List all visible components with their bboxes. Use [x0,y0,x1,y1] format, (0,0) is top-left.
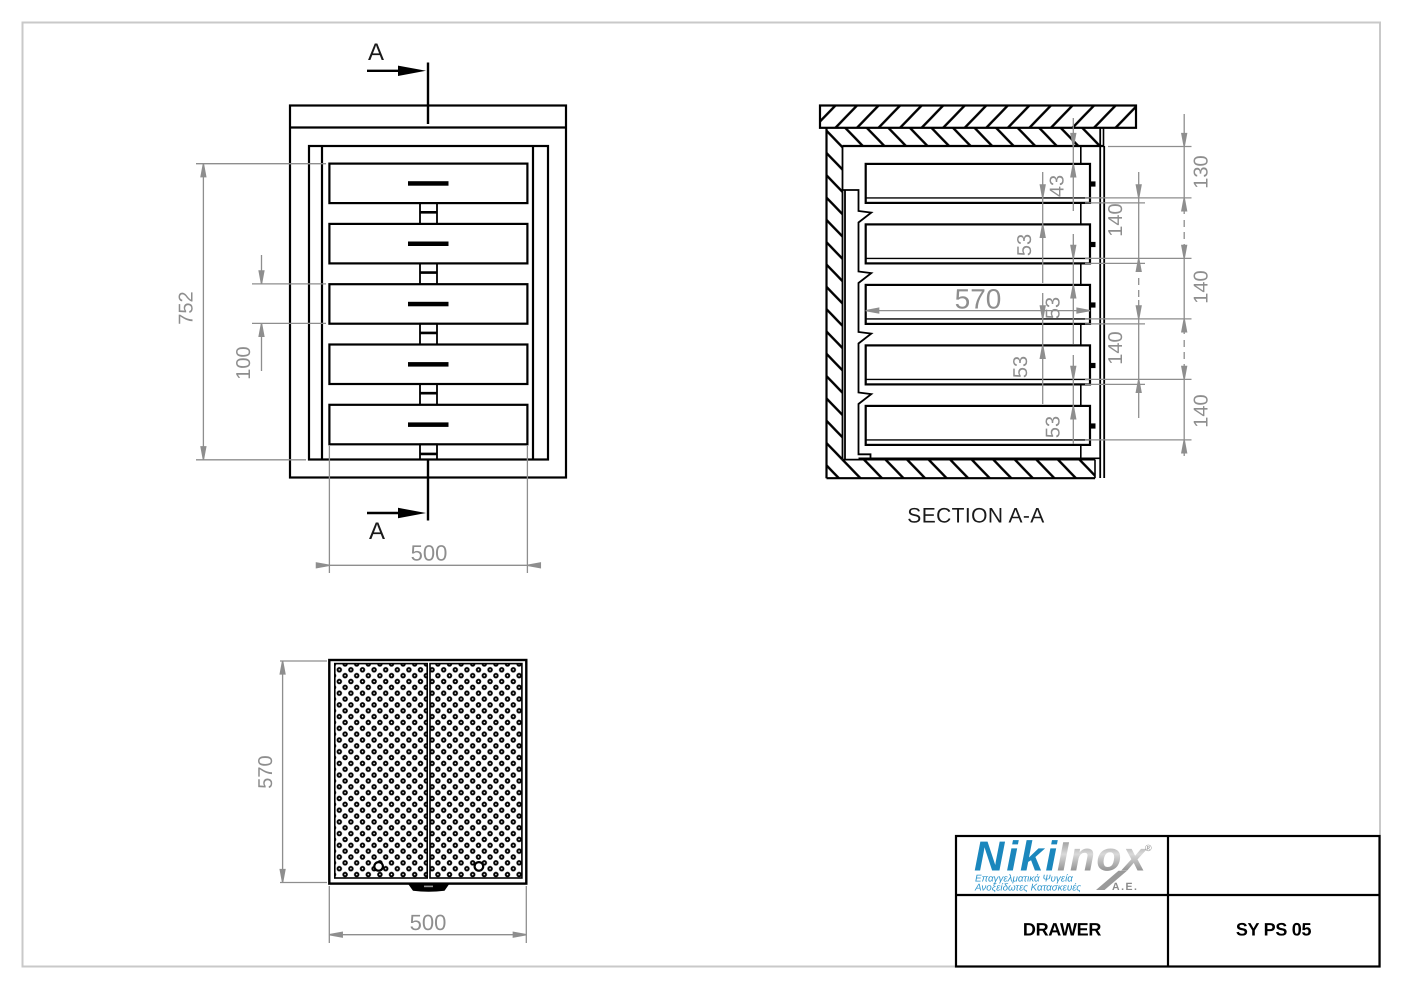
svg-text:570: 570 [955,284,1002,315]
svg-text:752: 752 [176,291,198,324]
svg-text:A.E.: A.E. [1112,881,1138,893]
svg-text:A: A [368,39,384,66]
svg-text:500: 500 [411,541,448,566]
svg-text:100: 100 [233,346,255,379]
svg-text:53: 53 [1043,297,1065,319]
svg-text:43: 43 [1047,175,1069,197]
svg-text:140: 140 [1105,203,1127,236]
svg-text:DRAWER: DRAWER [1023,920,1101,940]
svg-text:A: A [369,518,385,545]
svg-text:53: 53 [1014,234,1036,256]
svg-text:53: 53 [1043,416,1065,438]
svg-text:130: 130 [1191,155,1213,188]
svg-text:140: 140 [1191,270,1213,303]
svg-text:®: ® [1145,843,1152,853]
svg-text:500: 500 [410,910,447,935]
svg-text:140: 140 [1105,331,1127,364]
svg-text:Niki: Niki [974,833,1059,880]
svg-text:140: 140 [1191,394,1213,427]
svg-text:SECTION A-A: SECTION A-A [907,505,1044,528]
svg-text:Ανοξείδωτες Κατασκευές: Ανοξείδωτες Κατασκευές [974,883,1081,894]
svg-text:570: 570 [255,755,277,788]
svg-text:SY PS 05: SY PS 05 [1236,920,1312,940]
svg-text:53: 53 [1010,356,1032,378]
